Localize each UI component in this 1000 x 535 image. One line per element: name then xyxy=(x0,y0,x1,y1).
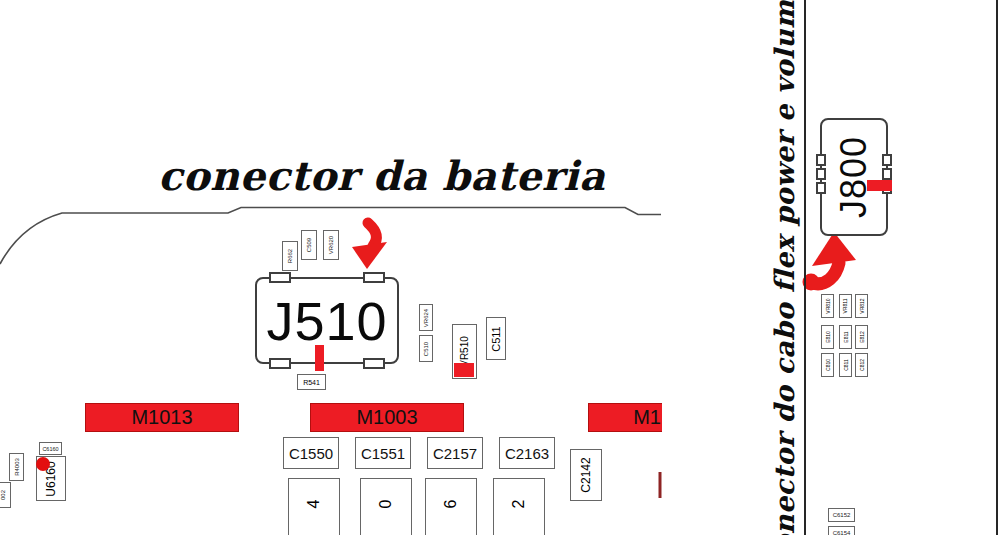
j510-tab xyxy=(363,358,385,369)
connector-j510: J510 xyxy=(255,277,399,364)
component-label-c509: C509 xyxy=(301,230,317,260)
j510-pin-highlight xyxy=(315,345,324,371)
partial-label-2: 2 xyxy=(493,478,545,535)
j800-pin-highlight xyxy=(867,180,892,191)
annotation-flex-wrap: conector do cabo flex power e volumes xyxy=(760,0,808,535)
j510-tab xyxy=(363,272,385,283)
j800-label: J800 xyxy=(833,136,875,218)
flex-arrow-head xyxy=(812,232,856,266)
component-label-e812: E812 xyxy=(855,325,868,349)
partial-label-0: 0 xyxy=(360,478,412,535)
module-m1003: M1003 xyxy=(310,403,464,432)
component-label-r541: R541 xyxy=(297,374,326,390)
component-label-vr620: VR620 xyxy=(323,230,339,260)
partial-label-6: 6 xyxy=(425,478,477,535)
j800-tab xyxy=(816,154,826,166)
component-label-e811: E811 xyxy=(839,325,852,349)
component-label-c812: C812 xyxy=(855,353,868,377)
component-label-c810: C810 xyxy=(821,353,834,377)
j800-tab xyxy=(882,154,892,166)
module-m1013: M1013 xyxy=(85,403,239,432)
j510-label: J510 xyxy=(266,290,387,352)
module-m1-partial: M1 xyxy=(588,403,662,432)
battery-arrow-tail xyxy=(368,223,376,246)
component-label-c6160: C6160 xyxy=(39,442,62,455)
vr510-highlight xyxy=(454,363,474,377)
component-label-vr624: VR624 xyxy=(419,304,433,331)
component-label-e810: E810 xyxy=(821,325,834,349)
j510-tab xyxy=(269,358,291,369)
component-label-c1550: C1550 xyxy=(283,437,339,469)
component-label-c2163: C2163 xyxy=(499,437,555,469)
right-board-edge-line xyxy=(996,0,998,535)
component-label-c811: C811 xyxy=(839,353,852,377)
component-label-c6154: C6154 xyxy=(828,526,855,535)
component-label-vr810: VR810 xyxy=(821,294,834,318)
annotation-battery: conector da bateria xyxy=(158,152,510,199)
u6160-red-dot xyxy=(36,457,50,471)
j800-tab xyxy=(882,168,892,180)
component-label-c2157: C2157 xyxy=(427,437,483,469)
component-label-vr510: VR510 xyxy=(452,324,477,379)
connector-j800: J800 xyxy=(820,118,888,236)
j800-tab xyxy=(816,168,826,180)
annotation-flex: conector do cabo flex power e volumes xyxy=(769,0,800,535)
component-label-vr811: VR811 xyxy=(839,294,852,318)
component-label-r662: R662 xyxy=(282,241,298,271)
component-label-c510: C510 xyxy=(419,335,433,362)
j800-tab xyxy=(816,182,826,194)
partial-label-4: 4 xyxy=(288,478,340,535)
component-label-partial-002: 002 xyxy=(0,482,11,508)
component-label-c1551: C1551 xyxy=(355,437,411,469)
component-label-c2142: C2142 xyxy=(570,449,602,501)
component-label-vr812: VR812 xyxy=(855,294,868,318)
component-label-c511: C511 xyxy=(486,317,506,360)
battery-arrow-head xyxy=(352,242,387,269)
pcb-diagram: conector da bateria R662 C509 VR620 J510… xyxy=(0,0,1000,535)
flex-arrow-tail xyxy=(812,263,839,284)
component-label-r4003: R4003 xyxy=(9,453,24,481)
j510-tab xyxy=(269,272,291,283)
component-label-c6152: C6152 xyxy=(828,508,855,522)
